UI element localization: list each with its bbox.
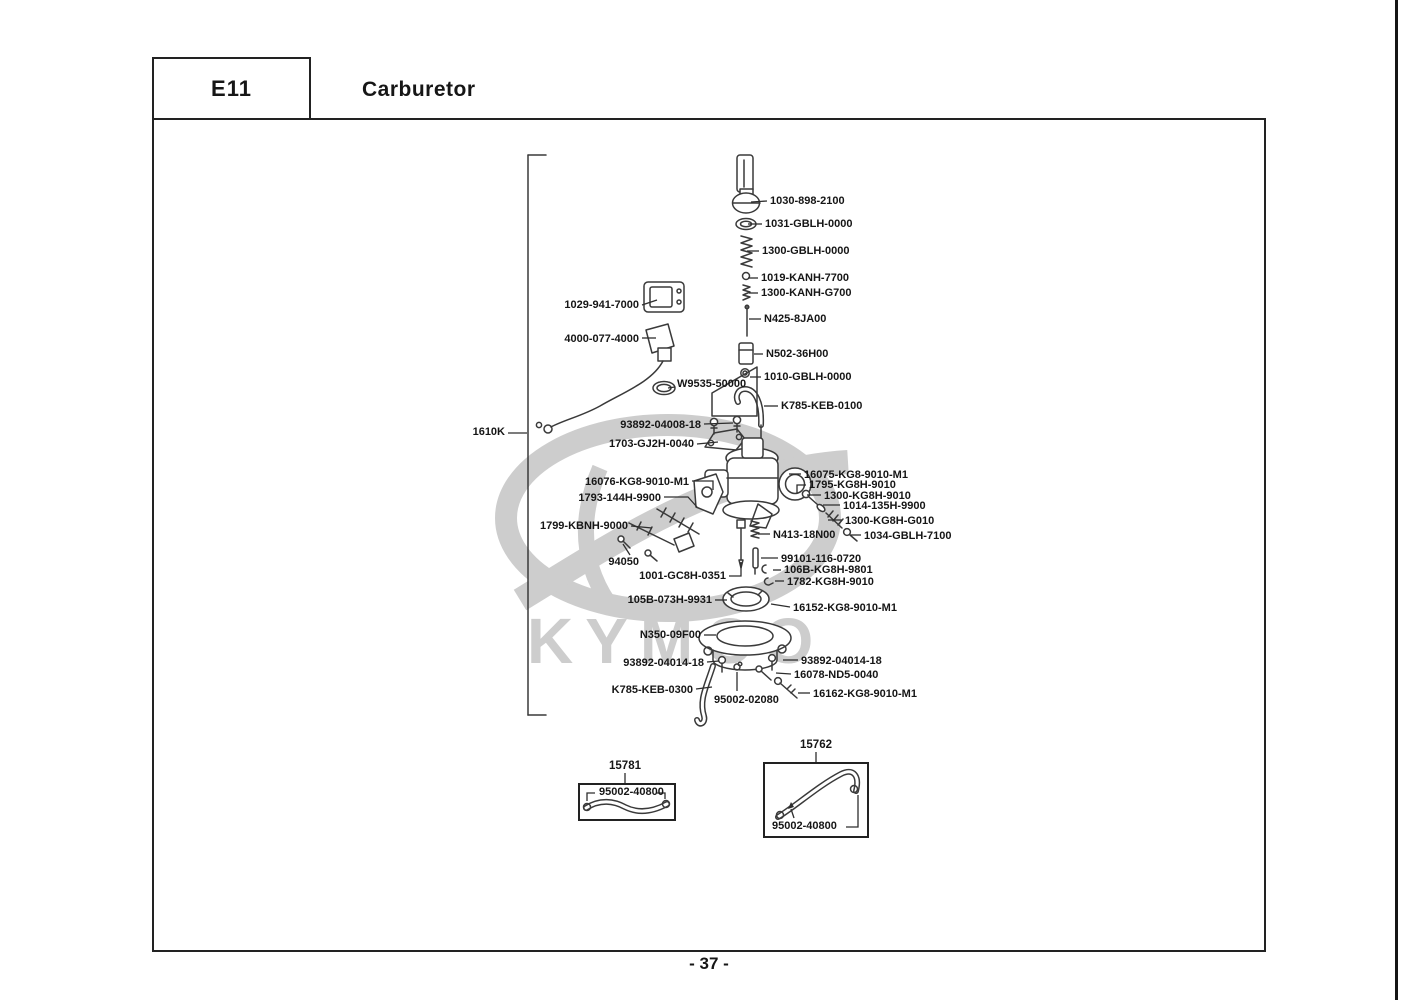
page-edge-line [1395,0,1398,1000]
parts-catalog-page: KYMCO [0,0,1415,1000]
section-code-box: E11 [152,57,311,120]
section-code: E11 [211,76,252,102]
page-number: - 37 - [152,954,1266,974]
page-frame [152,118,1266,952]
page-title: Carburetor [362,78,476,102]
